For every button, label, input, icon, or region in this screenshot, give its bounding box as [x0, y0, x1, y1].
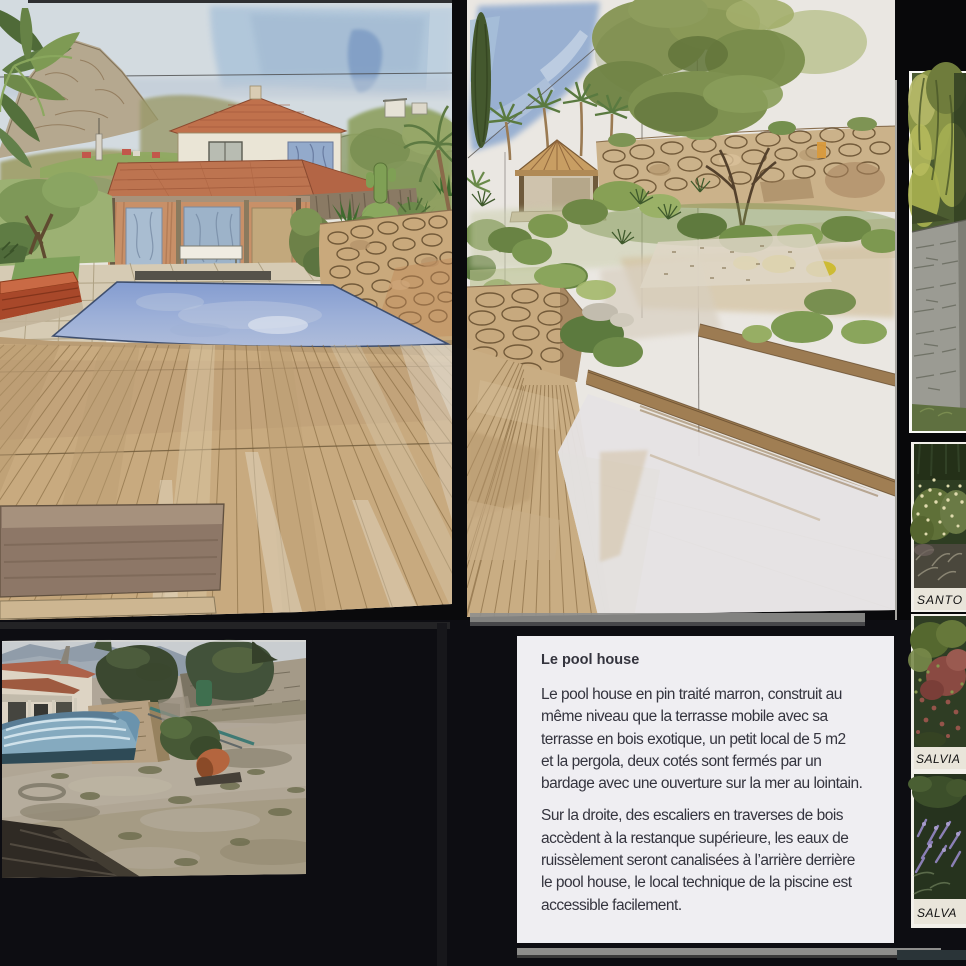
svg-text:SANTO: SANTO	[917, 593, 963, 607]
svg-text:SALVIA: SALVIA	[916, 752, 960, 766]
svg-text:SALVA: SALVA	[917, 906, 957, 920]
